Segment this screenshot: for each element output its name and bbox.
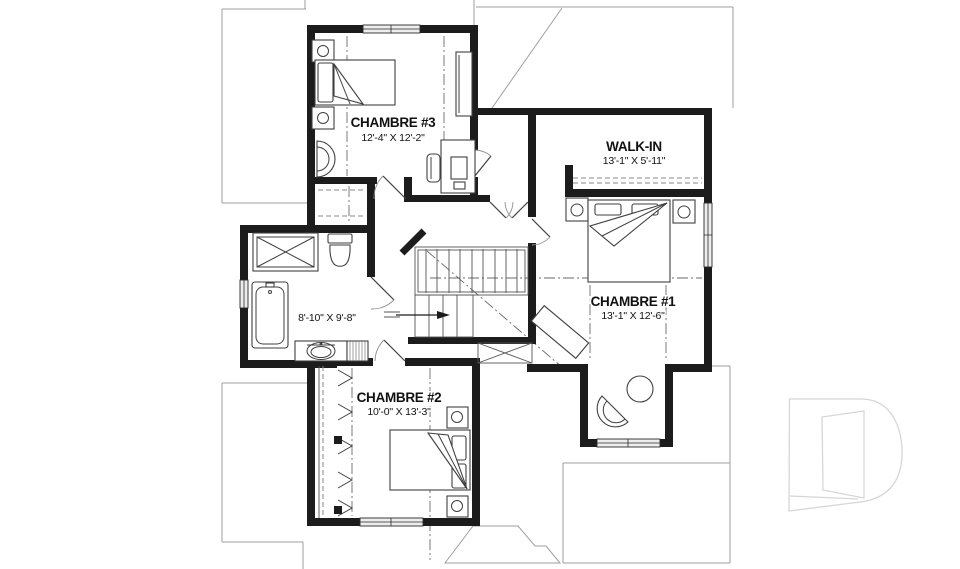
cabinet-hatched	[347, 341, 368, 361]
linen-box	[478, 343, 532, 363]
vanity-sink	[295, 341, 347, 361]
nightstand	[312, 40, 334, 62]
stair-direction-arrow	[384, 311, 450, 319]
armchair	[317, 141, 335, 177]
floor-plan-canvas: CHAMBRE #3 12'-4" X 12'-2" WALK-IN 13'-1…	[0, 0, 960, 569]
bed-chambre2	[390, 430, 470, 490]
room-dims-chambre2: 10'-0" X 13'-3"	[367, 406, 431, 418]
shower	[253, 233, 318, 271]
desk-chair	[427, 154, 440, 182]
bench	[531, 306, 588, 359]
floor-plan-drawing: CHAMBRE #3 12'-4" X 12'-2" WALK-IN 13'-1…	[0, 0, 960, 569]
bathroom-fixtures	[252, 233, 368, 361]
window-nook-south	[597, 439, 660, 447]
bed-chambre3	[315, 60, 395, 105]
nightstand	[447, 496, 468, 517]
nightstand	[673, 200, 695, 223]
nightstand	[447, 407, 468, 428]
door-hall-double	[490, 202, 528, 218]
nightstand	[566, 198, 588, 221]
room-dims-bathroom: 8'-10" X 9'-8"	[298, 312, 356, 324]
room-dims-chambre1: 13'-1" X 12'-6"	[601, 310, 665, 322]
room-label-chambre1: CHAMBRE #1	[591, 294, 677, 309]
builder-logo-d-watermark	[789, 399, 902, 511]
bed-chambre1	[588, 200, 670, 282]
dresser	[456, 52, 472, 116]
window-chambre1-east	[704, 203, 712, 267]
toilet	[328, 234, 352, 266]
room-label-chambre2: CHAMBRE #2	[357, 390, 442, 405]
nightstand	[312, 107, 334, 129]
room-dims-chambre3: 12'-4" X 12'-2"	[361, 132, 425, 144]
room-label-chambre3: CHAMBRE #3	[351, 115, 437, 130]
armchair	[597, 396, 628, 427]
door-chambre1	[532, 219, 550, 245]
door-chambre3-east	[474, 150, 491, 177]
staircase	[384, 247, 532, 363]
round-table	[627, 376, 653, 402]
window-chambre3-north	[363, 25, 420, 33]
door-bathroom	[371, 277, 394, 309]
attic-kneewall-chevrons	[334, 370, 352, 516]
window-bathroom-west	[240, 280, 248, 308]
bathtub	[252, 282, 288, 348]
door-chambre2	[375, 340, 405, 361]
door-chambre3	[374, 176, 406, 199]
room-label-walkin: WALK-IN	[606, 139, 662, 154]
room-dims-walkin: 13'-1" X 5'-11"	[603, 155, 666, 167]
desk	[441, 140, 475, 193]
window-chambre2-south	[360, 518, 423, 526]
chambre2-furniture	[319, 366, 470, 518]
